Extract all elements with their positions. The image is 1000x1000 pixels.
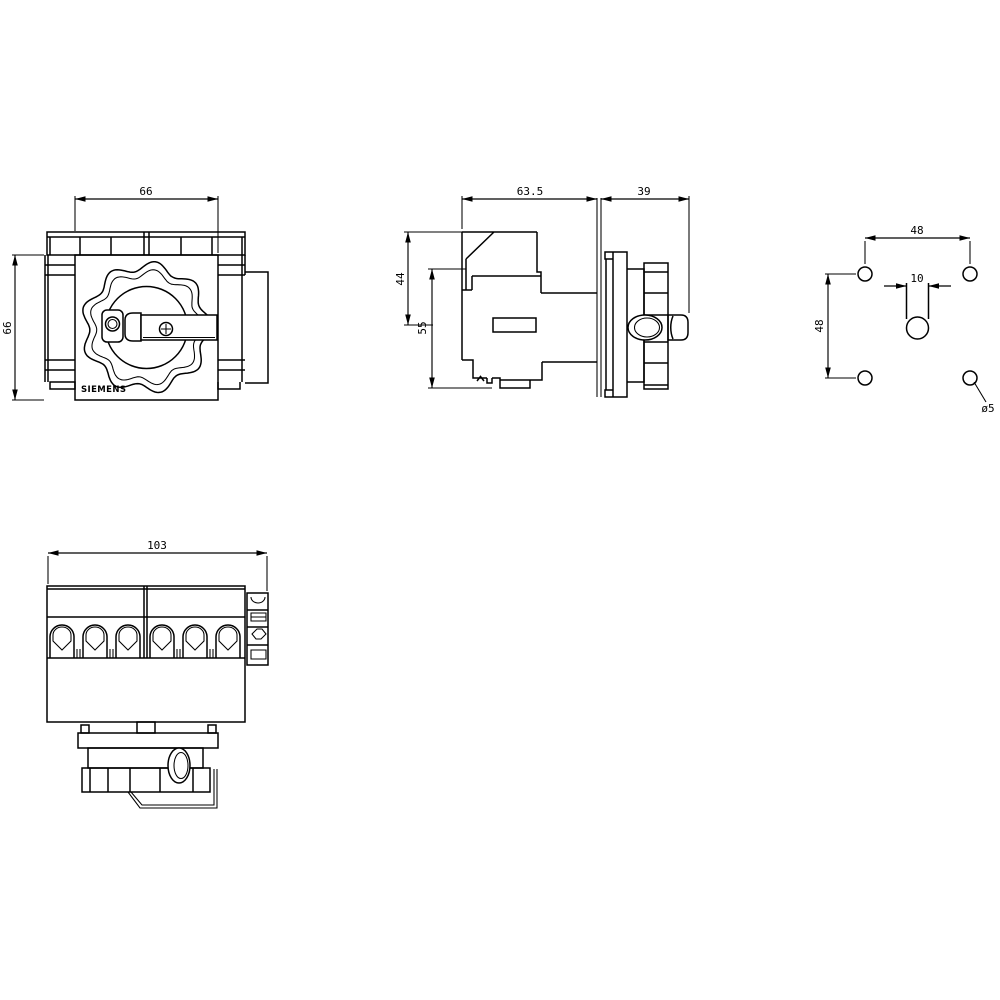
extension-lines [428, 269, 492, 388]
side-dim-body-height: 55 [416, 269, 492, 388]
leader-line [974, 382, 986, 402]
dimension-drawing: 66 66 [0, 0, 1000, 1000]
top-view: 103 [47, 539, 268, 808]
terminal-screw-icon [53, 627, 71, 650]
dim-label: ø5 [981, 402, 994, 415]
knob-grip-row [82, 768, 210, 792]
dim-label: 10 [910, 272, 923, 285]
brand-label: SIEMENS [81, 385, 126, 395]
drill-dim-vertical-48: 48 [813, 274, 856, 378]
handle-grip-oval [628, 315, 662, 340]
drill-hole-diameter-callout: ø5 [974, 382, 995, 415]
dim-label: 55 [416, 321, 429, 334]
dim-label: 63.5 [517, 185, 544, 198]
fixing-hole [858, 267, 872, 281]
slot-sides [907, 283, 929, 319]
dim-label: 44 [394, 272, 407, 286]
dim-label: 66 [1, 321, 14, 334]
front-terminal-strip [47, 232, 245, 255]
side-dim-handle-depth: 39 [601, 185, 689, 313]
side-body-outline [462, 232, 597, 388]
front-left-column [45, 255, 75, 389]
shaft-stub [137, 722, 155, 733]
side-dim-body-depth: 63.5 [462, 185, 597, 229]
front-dim-height: 66 [1, 255, 44, 400]
terminal-screw-icon [119, 627, 137, 650]
drill-shaft-slot: 10 [884, 272, 951, 339]
bottom-handle-assembly [78, 722, 218, 808]
side-dim-shaft-offset: 44 [394, 232, 462, 325]
fixing-hole [963, 267, 977, 281]
side-shaft-slot [493, 318, 536, 332]
dim-label: 48 [813, 319, 826, 332]
front-right-column [218, 255, 268, 389]
screw-icon [160, 323, 173, 336]
knob-handle [102, 310, 217, 342]
drilling-pattern-view: 48 48 10 ø5 [813, 224, 995, 415]
dim-label: 39 [637, 185, 650, 198]
side-handle-assembly [605, 252, 688, 397]
terminal-screw-icon [219, 627, 237, 650]
handle-hub [125, 313, 141, 341]
handle-flange-plate [78, 733, 218, 748]
flange-tab-right [208, 725, 216, 733]
bottom-dim-width: 103 [48, 539, 267, 591]
extension-lines [404, 232, 462, 325]
shaft-hole [907, 317, 929, 339]
extension-lines [75, 196, 218, 253]
front-dim-width: 66 [75, 185, 218, 253]
terminal-slots [77, 649, 213, 658]
extension-lines [12, 255, 44, 400]
bottom-view-terminals [50, 625, 240, 658]
dim-label: 103 [147, 539, 167, 552]
front-rotary-knob: SIEMENS [81, 262, 217, 395]
dim-label: 48 [910, 224, 923, 237]
handle-bar [141, 315, 217, 340]
accessory-clip [251, 597, 265, 603]
dimension-drawing-page: 66 66 [0, 0, 1000, 1000]
handle-end-tab [668, 315, 688, 340]
accessory-nut [252, 629, 266, 639]
side-view: 63.5 39 44 55 [394, 185, 689, 397]
front-view: 66 66 [1, 185, 268, 400]
mounting-panel-lines [597, 198, 601, 397]
terminal-screw-icon [186, 627, 204, 650]
extension-lines [825, 274, 856, 378]
bottom-accessory-block [247, 593, 268, 665]
accessory-window [251, 613, 266, 621]
extension-lines [865, 241, 970, 264]
flange-tab-left [81, 725, 89, 733]
drill-dim-horizontal-48: 48 [865, 224, 970, 264]
dim-label: 66 [139, 185, 152, 198]
terminal-screw-icon [153, 627, 171, 650]
accessory-foot [251, 650, 266, 659]
fixing-hole [858, 371, 872, 385]
terminal-screw-icon [86, 627, 104, 650]
